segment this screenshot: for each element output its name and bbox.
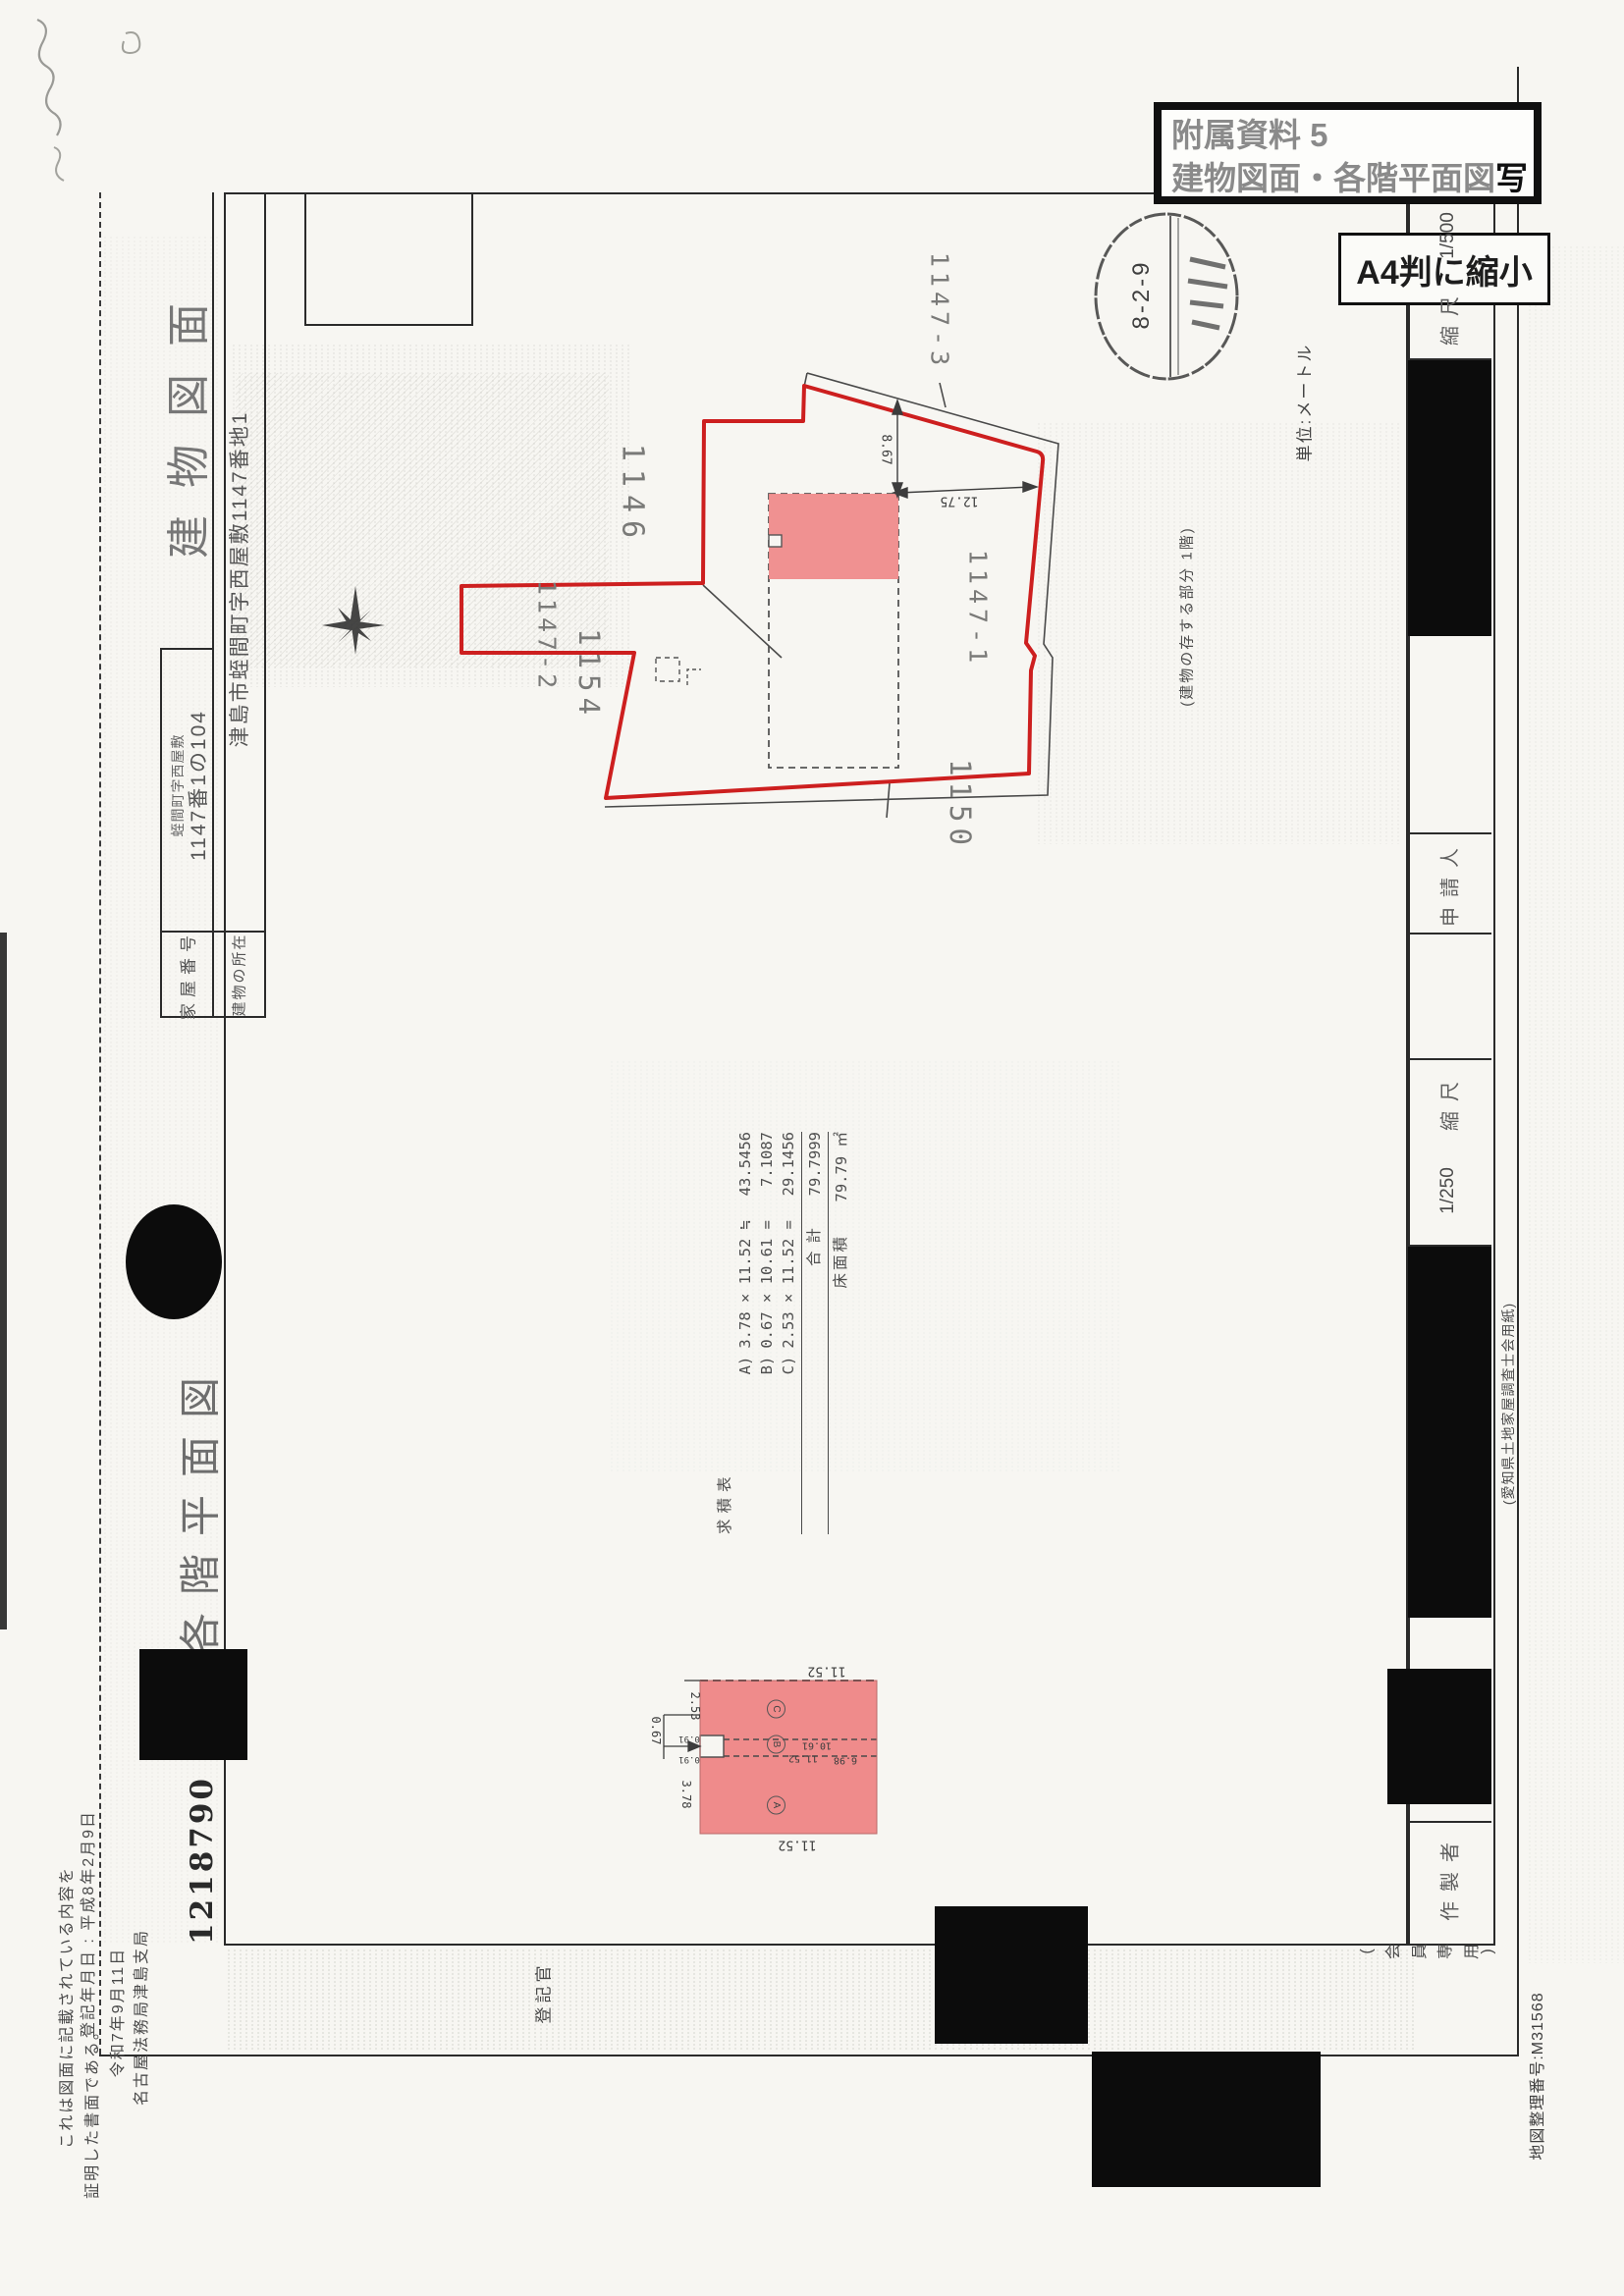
cert-line1: これは図面に記載されている内容を bbox=[53, 1866, 77, 2149]
redaction-circle bbox=[126, 1204, 222, 1319]
fp-dim-bottom: 11.52 bbox=[778, 1838, 816, 1852]
fp-dim-notch-lower: 0.91 bbox=[678, 1754, 700, 1764]
redaction-box bbox=[1092, 2052, 1321, 2187]
fp-dim-mid-length: 11.52 bbox=[788, 1753, 818, 1764]
cert-date: 令和7年9月11日 bbox=[104, 1948, 128, 2077]
fp-dim-top: 11.52 bbox=[807, 1664, 845, 1679]
cert-office: 名古屋法務局津島支局 bbox=[128, 1929, 151, 2106]
strip-divider bbox=[1406, 933, 1491, 934]
member-note: ( 会 員 専 用 ) bbox=[1368, 1940, 1493, 1963]
scale-top-label: 縮尺 bbox=[1435, 287, 1463, 346]
map-number: 地図整理番号:M31568 bbox=[1524, 1992, 1547, 2160]
strip-divider bbox=[1406, 832, 1491, 834]
preparer-label: 作製者 bbox=[1435, 1833, 1463, 1921]
fp-section-c: C bbox=[767, 1700, 786, 1719]
fp-dim-b-length: 10.61 bbox=[802, 1740, 832, 1751]
redaction-box bbox=[935, 1906, 1088, 2044]
fp-dim-c-height: 2.53 bbox=[688, 1692, 702, 1721]
redaction-box bbox=[139, 1649, 247, 1760]
scale-bottom-value: 1/250 bbox=[1437, 1167, 1459, 1214]
redaction-box bbox=[1387, 1669, 1491, 1804]
applicant-label: 申請人 bbox=[1435, 838, 1463, 927]
redaction-box bbox=[1408, 360, 1491, 636]
scale-top-value: 1/500 bbox=[1437, 212, 1459, 259]
strip-divider bbox=[1406, 1821, 1491, 1823]
fp-section-b: B bbox=[767, 1735, 786, 1754]
fp-dim-b-height: 0.67 bbox=[649, 1717, 663, 1745]
cert-line2: 証明した書面である。 bbox=[79, 2022, 102, 2199]
fp-section-a: A bbox=[767, 1796, 786, 1815]
registration-date: 登記年月日 : 平成8年2月9日 bbox=[75, 1810, 98, 2038]
registrar-label: 登記官 bbox=[530, 1962, 555, 2024]
fp-dim-a-height: 3.78 bbox=[679, 1781, 693, 1809]
scanned-registration-drawing: 附属資料 5 建物図面・各階平面図写 A4判に縮小 8-2-9 建物図面 各階平… bbox=[0, 0, 1624, 2296]
filing-number: 1218790 bbox=[185, 1776, 220, 1945]
fp-dim-notch-upper: 0.91 bbox=[678, 1734, 700, 1743]
strip-divider bbox=[1406, 1058, 1491, 1060]
fp-dim-right: 6.98 bbox=[834, 1755, 857, 1766]
paper-note: (愛知県土地家屋調査士会用紙) bbox=[1498, 1303, 1518, 1505]
redaction-box bbox=[1408, 1247, 1491, 1618]
scale-bottom-label: 縮尺 bbox=[1435, 1072, 1463, 1131]
